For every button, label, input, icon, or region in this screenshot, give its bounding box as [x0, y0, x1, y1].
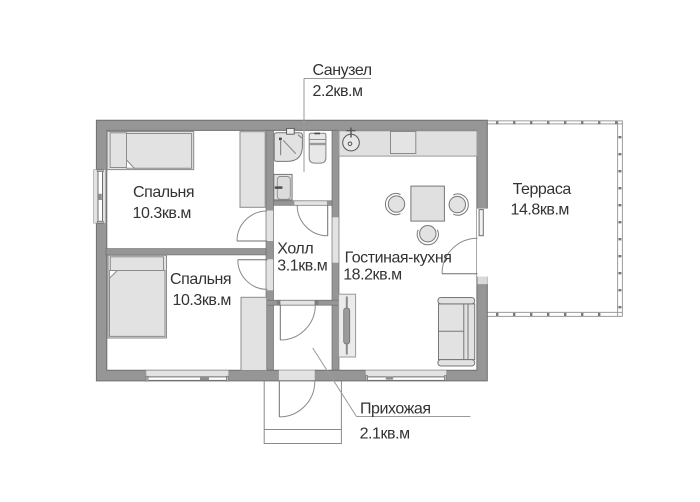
svg-text:18.2кв.м: 18.2кв.м	[343, 267, 402, 284]
svg-text:Прихожая: Прихожая	[360, 401, 431, 418]
svg-text:Терраса: Терраса	[513, 181, 572, 198]
svg-text:3.1кв.м: 3.1кв.м	[277, 257, 327, 274]
svg-text:Спальня: Спальня	[170, 271, 231, 288]
svg-text:2.2кв.м: 2.2кв.м	[313, 83, 363, 100]
svg-text:Холл: Холл	[277, 240, 313, 257]
svg-text:Гостиная-кухня: Гостиная-кухня	[345, 250, 452, 267]
svg-text:Спальня: Спальня	[133, 184, 194, 201]
svg-text:14.8кв.м: 14.8кв.м	[511, 202, 570, 219]
svg-text:10.3кв.м: 10.3кв.м	[133, 205, 192, 222]
svg-text:2.1кв.м: 2.1кв.м	[360, 426, 410, 443]
svg-text:10.3кв.м: 10.3кв.м	[173, 292, 232, 309]
svg-text:Санузел: Санузел	[313, 62, 372, 79]
